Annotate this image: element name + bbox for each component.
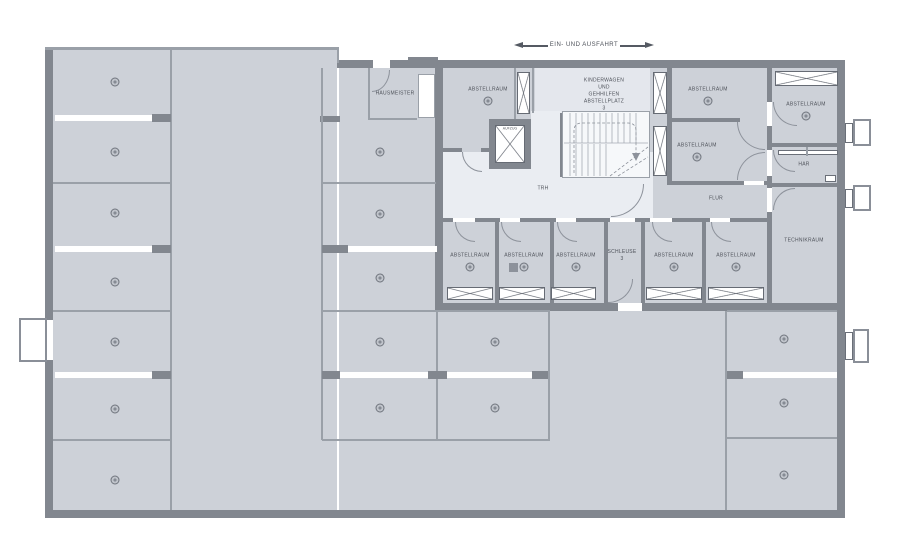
parking-divider [53, 439, 171, 441]
wall-top-notch [408, 57, 438, 68]
room-label-abstellraum-top-left: ABSTELLRAUM [468, 87, 507, 94]
wheel-stop-end [322, 245, 348, 253]
room-label-schleuse-3: SCHLEUSE 3 [608, 249, 637, 263]
room-number-marker [466, 263, 475, 272]
wheel-stop [447, 372, 532, 378]
light-well-grate [845, 189, 853, 208]
room-label-hausmeister: HAUSMEISTER [376, 91, 415, 98]
wheel-stop-end [532, 371, 548, 379]
wheel-stop-end [727, 371, 743, 379]
light-well [853, 119, 871, 146]
wheel-stop-end [322, 371, 340, 379]
vent-shaft [775, 71, 838, 86]
wall-room-divider [641, 222, 645, 303]
wall-block-left [435, 68, 443, 311]
door-opening [767, 188, 772, 212]
wall-room-divider [702, 222, 706, 303]
wheel-stop-end [152, 371, 171, 379]
wall-left [45, 47, 53, 518]
door-opening [744, 181, 764, 185]
vent-grille [551, 287, 596, 300]
room-label-abstellraum-row-2: ABSTELLRAUM [504, 253, 543, 260]
wheel-stop-end [428, 371, 447, 379]
vent-shaft [653, 72, 667, 114]
pipe-tick [806, 147, 808, 156]
parking-spot-marker [780, 335, 789, 344]
vent-grille [499, 287, 545, 300]
staircase [562, 111, 650, 178]
boundary-step [337, 47, 339, 63]
parking-spot-marker [376, 274, 385, 283]
vent-grille [708, 287, 764, 300]
wheel-stop-end [152, 245, 171, 253]
parking-edge [725, 311, 727, 510]
entrance-label: EIN- UND AUSFAHRT [550, 42, 618, 48]
room-number-marker [693, 153, 702, 162]
wall-har-bottom [772, 183, 837, 187]
door-opening [373, 60, 390, 68]
room-label-abstellraum-row-5: ABSTELLRAUM [654, 253, 693, 260]
parking-spot-marker [376, 148, 385, 157]
light-well [19, 318, 47, 362]
room-label-abstellraum-mid-lower: ABSTELLRAUM [677, 143, 716, 150]
light-well-grate [845, 332, 853, 360]
parking-spot-marker [111, 78, 120, 87]
arrow-left-line [523, 45, 548, 47]
light-well [853, 329, 869, 363]
room-label-abstellraum-row-3: ABSTELLRAUM [556, 253, 595, 260]
vent-grille [447, 287, 493, 300]
parking-spot-marker [780, 399, 789, 408]
wall-hausmeister-bottom [368, 118, 417, 120]
light-well [853, 185, 871, 211]
parking-spot-marker [491, 404, 500, 413]
door-opening [767, 102, 772, 126]
parking-spot-marker [376, 210, 385, 219]
wall-mid-rooms [672, 118, 740, 122]
room-label-har: HAR [798, 162, 809, 169]
wall-tlroom-bottom-a [443, 148, 462, 152]
parking-spot-marker [780, 471, 789, 480]
wheel-stop [340, 372, 428, 378]
room-label-aufzug: AUFZUG [502, 127, 519, 132]
parking-edge [548, 311, 550, 440]
parking-spot-marker [491, 338, 500, 347]
parking-divider [322, 439, 550, 441]
door-opening [767, 150, 772, 176]
room-label-technikraum: TECHNIKRAUM [784, 238, 823, 245]
room-label-abstellraum-row-6: ABSTELLRAUM [716, 253, 755, 260]
parking-divider [727, 437, 837, 439]
wall-tlroom-right [514, 68, 516, 120]
wall-hausmeister-left [368, 68, 370, 120]
parking-divider [322, 182, 436, 184]
floor-plan: EIN- UND AUSFAHRT [0, 0, 900, 538]
parking-spot-marker [111, 148, 120, 157]
parking-spot-marker [111, 278, 120, 287]
room-number-marker [572, 263, 581, 272]
parking-divider [322, 310, 550, 312]
room-label-abstellraum-top-right: ABSTELLRAUM [786, 102, 825, 109]
arrow-right-line [620, 45, 645, 47]
wall-har-top [772, 143, 837, 147]
vent-shaft [517, 72, 530, 114]
wall-kinderwagen-left [532, 68, 534, 113]
arrow-right-icon [645, 42, 654, 48]
room-number-marker [802, 112, 811, 121]
parking-spot-marker [376, 338, 385, 347]
parking-spot-marker [111, 338, 120, 347]
room-number-marker [732, 263, 741, 272]
room-label-abstellraum-row-1: ABSTELLRAUM [450, 253, 489, 260]
meter-box [825, 175, 836, 182]
parking-divider [727, 310, 837, 312]
wall-stair-right [667, 68, 672, 185]
wall-tlroom-bottom-b [481, 148, 489, 152]
vent-shaft [653, 126, 667, 176]
room-label-abstellraum-mid-upper: ABSTELLRAUM [688, 87, 727, 94]
room-label-kinderwagen-abstellplatz: KINDERWAGEN UND GEHHILFEN ABSTELLPLATZ 3 [584, 78, 624, 113]
vent-grille [646, 287, 702, 300]
equipment-square [509, 263, 518, 272]
boundary-top-left [45, 47, 339, 50]
parking-spot-marker [111, 209, 120, 218]
parking-spot-marker [111, 476, 120, 485]
room-number-marker [484, 97, 493, 106]
room-number-marker [670, 263, 679, 272]
parking-spot-marker [111, 405, 120, 414]
shaft-niche [418, 74, 435, 118]
parking-divider [53, 310, 171, 312]
room-number-marker [520, 263, 529, 272]
parking-spot-marker [376, 404, 385, 413]
door-opening [618, 303, 642, 311]
door-opening [610, 218, 635, 222]
wall-tick [320, 116, 340, 122]
light-well-grate [845, 123, 853, 143]
wheel-stop-end [152, 114, 171, 122]
parking-edge [321, 68, 323, 440]
wall-right [837, 60, 845, 518]
parking-divider [53, 182, 171, 184]
room-number-marker [704, 97, 713, 106]
wheel-stop [743, 372, 837, 378]
room-label-flur: FLUR [709, 196, 723, 203]
wall-bottom [45, 510, 845, 518]
wheel-stop [348, 246, 437, 252]
arrow-left-icon [514, 42, 523, 48]
floor-area-trh-upper [531, 111, 561, 156]
room-label-trh: TRH [537, 186, 548, 193]
